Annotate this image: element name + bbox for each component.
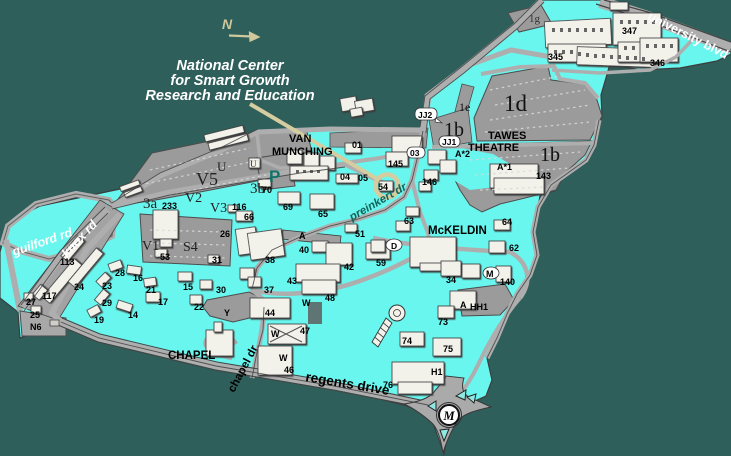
svg-text:42: 42 xyxy=(344,262,354,272)
svg-text:1d: 1d xyxy=(504,91,528,116)
svg-text:01: 01 xyxy=(352,140,362,150)
svg-text:A: A xyxy=(460,300,467,310)
svg-text:47: 47 xyxy=(300,326,310,336)
svg-text:48: 48 xyxy=(325,293,335,303)
svg-text:63: 63 xyxy=(404,216,414,226)
svg-text:THEATRE: THEATRE xyxy=(468,142,519,154)
svg-text:U: U xyxy=(217,159,227,174)
svg-text:N6: N6 xyxy=(30,322,42,332)
svg-text:28: 28 xyxy=(115,268,125,278)
svg-text:64: 64 xyxy=(502,217,512,227)
svg-text:54: 54 xyxy=(378,182,388,192)
svg-text:143: 143 xyxy=(536,171,551,181)
svg-text:W: W xyxy=(271,329,280,339)
svg-text:V1: V1 xyxy=(142,239,159,254)
svg-text:1e: 1e xyxy=(459,100,470,114)
svg-text:U: U xyxy=(250,159,257,169)
svg-text:N: N xyxy=(222,16,233,32)
svg-text:29: 29 xyxy=(102,298,112,308)
svg-text:1b: 1b xyxy=(540,144,560,166)
svg-text:3a: 3a xyxy=(143,196,158,212)
svg-text:66: 66 xyxy=(244,212,254,222)
svg-text:59: 59 xyxy=(376,258,386,268)
svg-text:113: 113 xyxy=(60,257,75,267)
svg-text:JJ2: JJ2 xyxy=(418,110,432,120)
svg-text:62: 62 xyxy=(509,243,519,253)
svg-text:for Smart Growth: for Smart Growth xyxy=(170,73,289,89)
svg-text:34: 34 xyxy=(446,275,456,285)
svg-text:24: 24 xyxy=(74,282,84,292)
svg-text:M: M xyxy=(442,409,455,423)
svg-text:V3: V3 xyxy=(210,201,227,216)
svg-text:44: 44 xyxy=(265,308,275,318)
svg-text:22: 22 xyxy=(194,302,204,312)
svg-text:73: 73 xyxy=(438,317,448,327)
svg-text:38: 38 xyxy=(265,255,275,265)
svg-text:75: 75 xyxy=(443,344,453,354)
svg-text:69: 69 xyxy=(283,202,293,212)
svg-text:JJ1: JJ1 xyxy=(442,137,456,147)
svg-text:Research and Education: Research and Education xyxy=(145,88,314,104)
svg-text:46: 46 xyxy=(284,365,294,375)
svg-text:25: 25 xyxy=(30,310,40,320)
svg-text:03: 03 xyxy=(410,148,420,158)
svg-text:McKELDIN: McKELDIN xyxy=(428,225,487,237)
svg-text:M: M xyxy=(486,269,494,279)
svg-text:30: 30 xyxy=(216,285,226,295)
svg-text:145: 145 xyxy=(388,159,403,169)
svg-text:23: 23 xyxy=(102,281,112,291)
svg-text:V2: V2 xyxy=(185,191,202,206)
svg-text:Y: Y xyxy=(224,308,230,318)
svg-text:W: W xyxy=(302,298,311,308)
svg-text:65: 65 xyxy=(318,209,328,219)
svg-text:117: 117 xyxy=(42,291,57,301)
svg-text:51: 51 xyxy=(355,229,365,239)
svg-text:26: 26 xyxy=(220,229,230,239)
svg-text:1g: 1g xyxy=(529,13,541,25)
svg-text:27: 27 xyxy=(26,297,36,307)
svg-text:D: D xyxy=(391,241,397,251)
svg-text:04: 04 xyxy=(340,172,350,182)
svg-text:MUNCHING: MUNCHING xyxy=(272,146,333,158)
svg-text:347: 347 xyxy=(622,26,637,36)
svg-text:53: 53 xyxy=(160,252,170,262)
svg-text:A*1: A*1 xyxy=(497,162,512,172)
svg-text:15: 15 xyxy=(183,282,193,292)
svg-text:31: 31 xyxy=(212,255,222,265)
svg-text:V5: V5 xyxy=(196,169,218,189)
svg-text:VAN: VAN xyxy=(289,133,311,145)
svg-text:116: 116 xyxy=(232,202,247,212)
svg-text:H1: H1 xyxy=(431,367,443,377)
svg-text:National Center: National Center xyxy=(176,58,285,74)
svg-text:19: 19 xyxy=(94,315,104,325)
svg-text:345: 345 xyxy=(548,52,563,62)
svg-text:346: 346 xyxy=(650,58,665,68)
svg-text:16: 16 xyxy=(133,273,143,283)
svg-text:233: 233 xyxy=(162,201,177,211)
svg-text:W: W xyxy=(279,353,288,363)
svg-text:40: 40 xyxy=(299,245,309,255)
svg-text:A*2: A*2 xyxy=(455,149,470,159)
svg-text:05: 05 xyxy=(358,173,368,183)
svg-text:43: 43 xyxy=(287,276,297,286)
svg-text:P: P xyxy=(269,167,280,186)
svg-text:CHAPEL: CHAPEL xyxy=(168,350,215,362)
svg-text:74: 74 xyxy=(402,336,412,346)
svg-text:TAWES: TAWES xyxy=(488,130,526,142)
svg-text:70: 70 xyxy=(262,185,272,195)
svg-text:76: 76 xyxy=(383,380,393,390)
svg-text:17: 17 xyxy=(158,297,168,307)
svg-text:S4: S4 xyxy=(183,240,198,255)
svg-text:14: 14 xyxy=(128,310,138,320)
svg-text:37: 37 xyxy=(264,285,274,295)
svg-text:A: A xyxy=(299,231,306,241)
svg-text:146: 146 xyxy=(422,177,437,187)
svg-text:HH1: HH1 xyxy=(470,302,488,312)
svg-text:21: 21 xyxy=(146,285,156,295)
svg-text:140: 140 xyxy=(500,277,515,287)
